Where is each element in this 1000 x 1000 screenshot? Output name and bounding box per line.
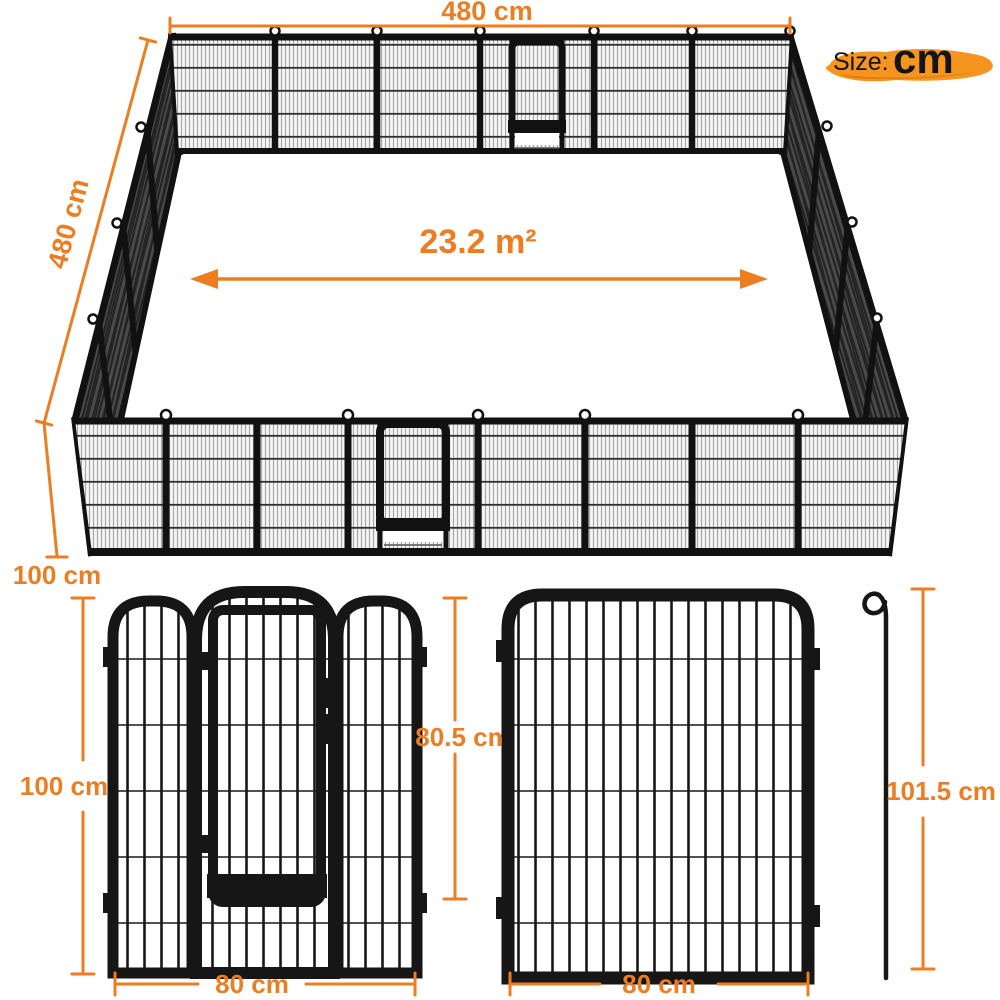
- area-arrow: [190, 269, 768, 289]
- hook-loop: [113, 219, 122, 228]
- pen-front-wall: [73, 410, 907, 553]
- hook-loop: [473, 410, 483, 420]
- group-height-label: 100 cm: [20, 771, 108, 801]
- door-latch-lower: [320, 714, 333, 744]
- single-panel: [508, 595, 808, 978]
- top-width-label: 480 cm: [441, 0, 533, 26]
- connector-nub: [103, 893, 113, 913]
- connector-nub: [496, 640, 506, 662]
- group-width-label: 80 cm: [215, 969, 289, 999]
- connector-nub: [417, 893, 427, 913]
- hook-loop: [343, 410, 353, 420]
- size-unit: cm: [893, 35, 954, 82]
- hook-loop: [793, 410, 803, 420]
- door-hinge-top: [198, 652, 211, 670]
- hook-loop: [137, 123, 146, 132]
- hook-loop: [873, 314, 882, 323]
- hook-loop: [688, 27, 697, 36]
- single-panel-view: 101.5 cm 80 cm: [496, 589, 996, 999]
- side-panel-left: [113, 601, 192, 973]
- connector-nub: [496, 897, 506, 919]
- dimension-pen-height: [44, 423, 67, 557]
- diagram-svg: 480 cm 480 cm 100 cm 23.2 m² Size: cm: [0, 0, 1000, 1000]
- door-sill: [207, 874, 327, 898]
- door-height-label: 80.5 cm: [415, 722, 510, 752]
- hook-loop: [848, 218, 857, 227]
- hook-loop: [89, 315, 98, 324]
- connector-nub: [810, 648, 820, 670]
- stake-height-label: 101.5 cm: [886, 776, 996, 806]
- size-prefix: Size:: [833, 48, 889, 76]
- pen-height-label: 100 cm: [13, 560, 101, 590]
- hook-loop: [373, 27, 382, 36]
- connector-nub: [417, 647, 427, 667]
- area-label: 23.2 m²: [419, 223, 536, 261]
- left-depth-label: 480 cm: [42, 176, 95, 272]
- hook-loop: [580, 410, 590, 420]
- product-dimension-diagram: 480 cm 480 cm 100 cm 23.2 m² Size: cm: [0, 0, 1000, 1000]
- size-badge: Size: cm: [826, 35, 993, 82]
- hook-loop: [271, 27, 280, 36]
- pen-back-wall: [170, 27, 795, 153]
- hook-loop: [161, 410, 171, 420]
- hook-loop: [823, 122, 832, 131]
- isometric-pen: 480 cm 480 cm 100 cm 23.2 m² Size: cm: [13, 0, 993, 590]
- hook-loop: [590, 27, 599, 36]
- connector-nub: [103, 647, 113, 667]
- hook-loop: [476, 27, 485, 36]
- ground-stake: [865, 594, 887, 978]
- door-latch-upper: [320, 678, 333, 708]
- door-panel-group-view: 100 cm 80.5 cm 80 cm: [20, 592, 511, 999]
- side-panel-right: [338, 601, 417, 973]
- connector-nub: [810, 905, 820, 927]
- panel-width-label: 80 cm: [622, 969, 696, 999]
- door-hinge-bottom: [198, 835, 211, 853]
